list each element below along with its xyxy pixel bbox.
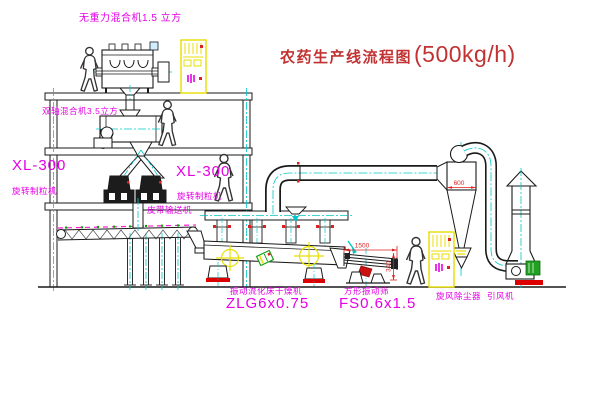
exhaust-duct: [273, 162, 440, 222]
diagram-capacity: (500kg/h): [414, 41, 516, 68]
label-dryer-model: ZLG6x0.75: [226, 296, 309, 311]
label-screen-model: FS0.6x1.5: [339, 296, 416, 311]
worker-figure: [81, 47, 98, 91]
worker-figure: [407, 238, 426, 285]
induced-draft-fan: [506, 168, 543, 290]
label-induced-draft-fan: 引风机: [487, 292, 514, 301]
label-cyclone: 旋风除尘器: [436, 292, 481, 301]
dim-cyclone-diameter: 600: [454, 180, 465, 187]
label-belt-conveyor: 皮带输送机: [147, 206, 192, 215]
label-gravity-free-mixer: 无重力混合机1.5 立方: [79, 14, 182, 24]
dim-screen-length: 1500: [355, 243, 370, 250]
label-granulator-right-model: XL-300: [176, 164, 230, 179]
exhaust-hood: [200, 211, 352, 220]
diagram-title: 农药生产线流程图 (500kg/h): [280, 41, 516, 68]
fluid-bed-dryer: [204, 241, 350, 286]
process-flow-diagram: 1500 340 600: [0, 0, 600, 403]
dim-screen-height: 340: [386, 261, 393, 272]
diagram-title-text: 农药生产线流程图: [280, 46, 412, 67]
label-twin-shaft-mixer: 双轴混合机3.5立方: [42, 107, 118, 116]
label-granulator-right-name: 旋转制粒机: [177, 192, 222, 201]
vibrating-screen: 1500 340: [344, 241, 398, 286]
label-granulator-left-model: XL-300: [12, 158, 66, 173]
belt-conveyor: [57, 224, 209, 290]
label-granulator-left-name: 旋转制粒机: [12, 187, 57, 196]
control-cabinet-1: [181, 40, 206, 93]
control-cabinet-2: [429, 232, 454, 287]
